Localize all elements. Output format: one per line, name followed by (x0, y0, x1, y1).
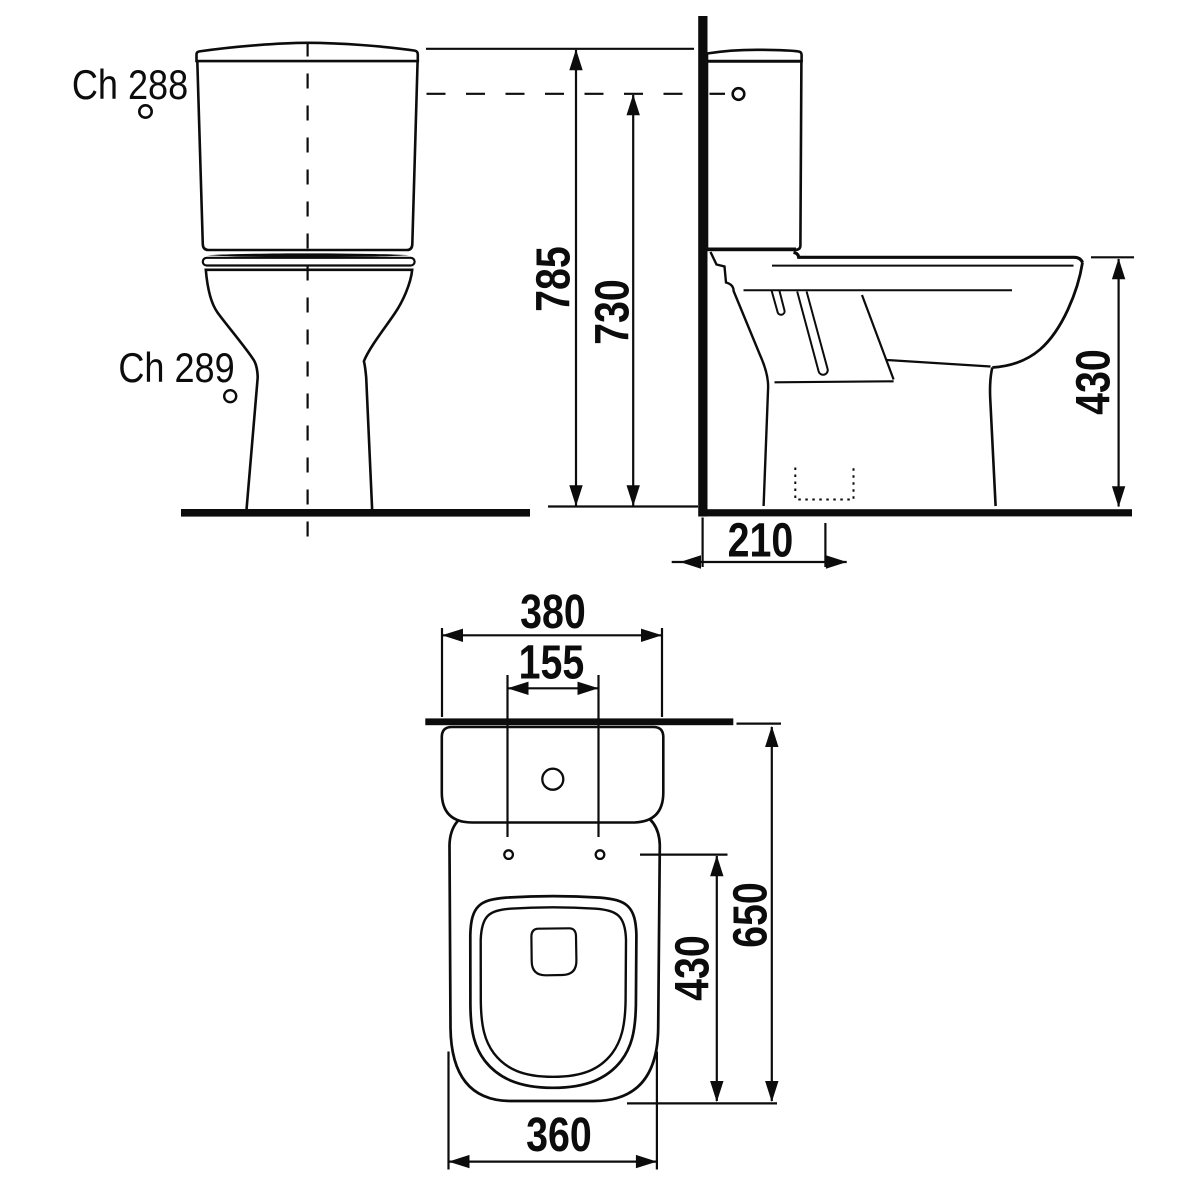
svg-text:210: 210 (728, 514, 794, 568)
svg-text:380: 380 (520, 585, 586, 639)
svg-text:430: 430 (1067, 349, 1121, 415)
svg-text:650: 650 (724, 882, 778, 948)
svg-text:Ch 289: Ch 289 (118, 346, 234, 392)
svg-text:Ch 288: Ch 288 (72, 63, 188, 109)
svg-text:785: 785 (527, 246, 581, 312)
svg-text:360: 360 (526, 1108, 592, 1162)
svg-text:155: 155 (519, 636, 585, 690)
svg-text:730: 730 (586, 279, 640, 345)
svg-text:430: 430 (666, 935, 720, 1001)
